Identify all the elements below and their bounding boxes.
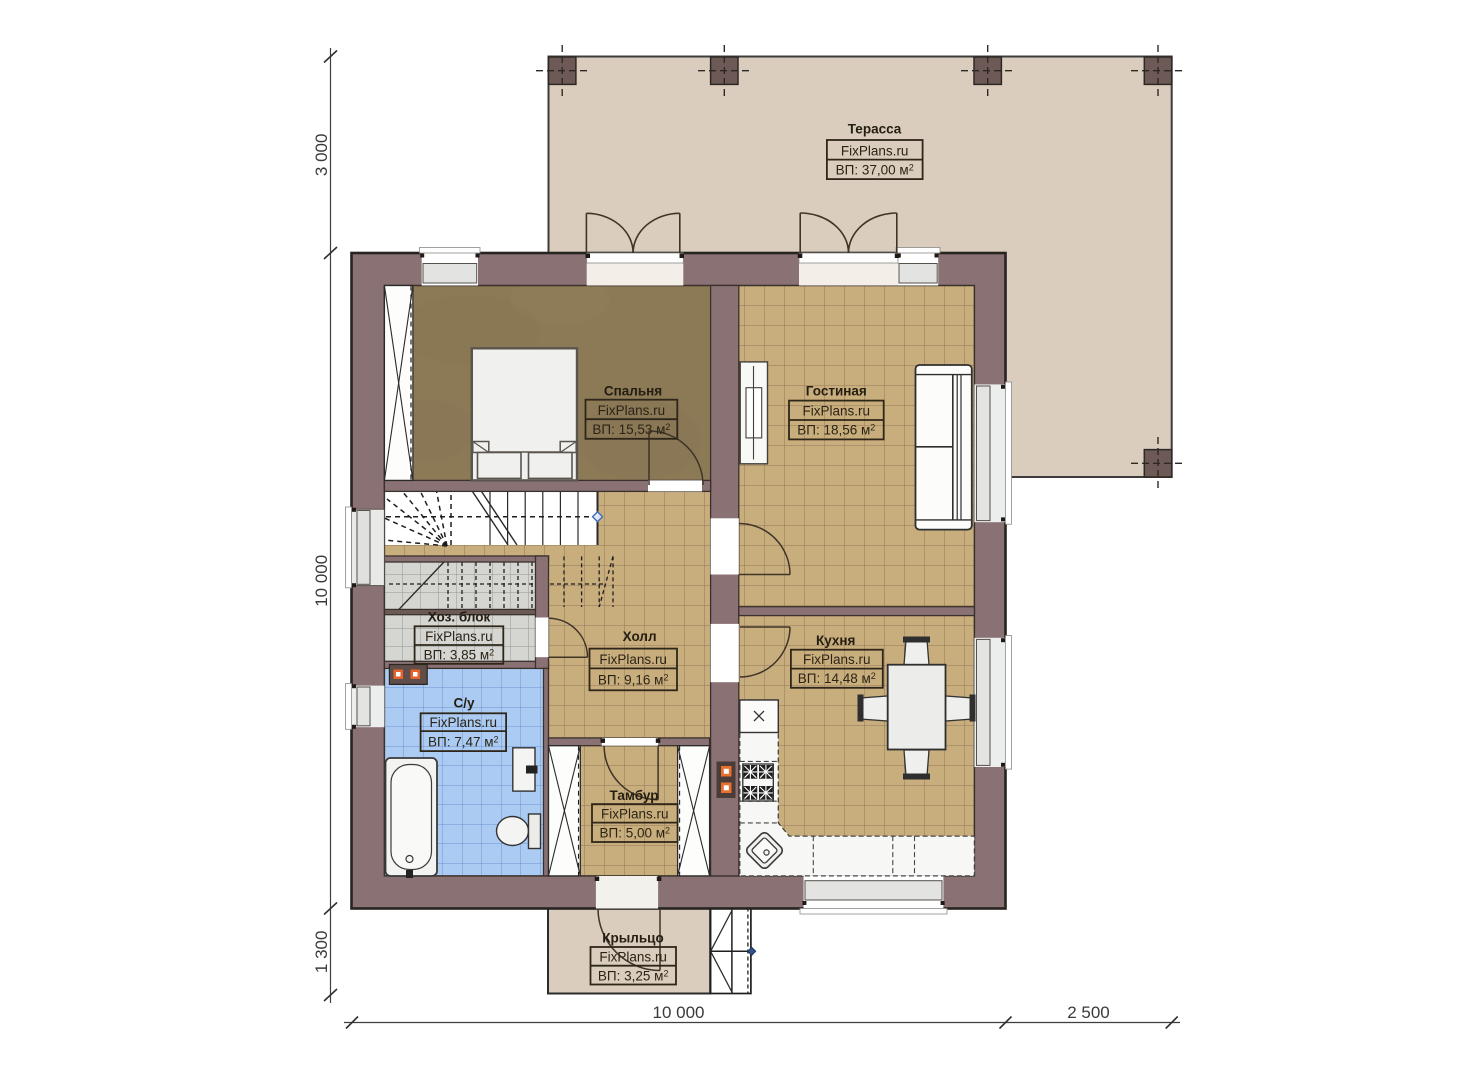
svg-text:Холл: Холл — [623, 629, 657, 644]
svg-text:FixPlans.ru: FixPlans.ru — [599, 652, 667, 667]
svg-text:Крыльцо: Крыльцо — [602, 931, 663, 946]
svg-text:ВП: 9,16 м2: ВП: 9,16 м2 — [598, 673, 669, 688]
svg-text:FixPlans.ru: FixPlans.ru — [599, 949, 667, 964]
svg-text:ВП: 5,00 м2: ВП: 5,00 м2 — [600, 826, 671, 841]
svg-text:С/у: С/у — [453, 696, 475, 711]
svg-text:Гостиная: Гостиная — [806, 384, 867, 399]
svg-text:2 500: 2 500 — [1067, 1003, 1110, 1022]
svg-text:FixPlans.ru: FixPlans.ru — [841, 143, 909, 158]
svg-text:ВП: 14,48 м2: ВП: 14,48 м2 — [798, 671, 876, 686]
svg-text:ВП: 7,47 м2: ВП: 7,47 м2 — [428, 735, 499, 750]
svg-text:1 300: 1 300 — [312, 931, 331, 974]
svg-text:FixPlans.ru: FixPlans.ru — [803, 404, 871, 419]
svg-text:FixPlans.ru: FixPlans.ru — [601, 807, 669, 822]
svg-text:FixPlans.ru: FixPlans.ru — [425, 629, 493, 644]
svg-text:10 000: 10 000 — [653, 1003, 705, 1022]
svg-text:3 000: 3 000 — [312, 134, 331, 177]
svg-text:Тамбур: Тамбур — [610, 788, 659, 803]
svg-text:ВП: 3,85 м2: ВП: 3,85 м2 — [424, 647, 495, 662]
svg-text:FixPlans.ru: FixPlans.ru — [430, 715, 498, 730]
svg-text:ВП: 37,00 м2: ВП: 37,00 м2 — [836, 163, 914, 178]
svg-text:Терасса: Терасса — [848, 122, 902, 137]
svg-text:Спальня: Спальня — [604, 384, 662, 399]
svg-text:FixPlans.ru: FixPlans.ru — [803, 652, 871, 667]
svg-text:ВП: 3,25 м2: ВП: 3,25 м2 — [598, 968, 669, 983]
svg-text:FixPlans.ru: FixPlans.ru — [598, 403, 666, 418]
svg-text:ВП: 15,53 м2: ВП: 15,53 м2 — [592, 422, 670, 437]
svg-text:Кухня: Кухня — [816, 633, 855, 648]
svg-text:Хоз. блок: Хоз. блок — [428, 610, 491, 625]
svg-text:10 000: 10 000 — [312, 555, 331, 607]
svg-text:ВП: 18,56 м2: ВП: 18,56 м2 — [797, 423, 875, 438]
